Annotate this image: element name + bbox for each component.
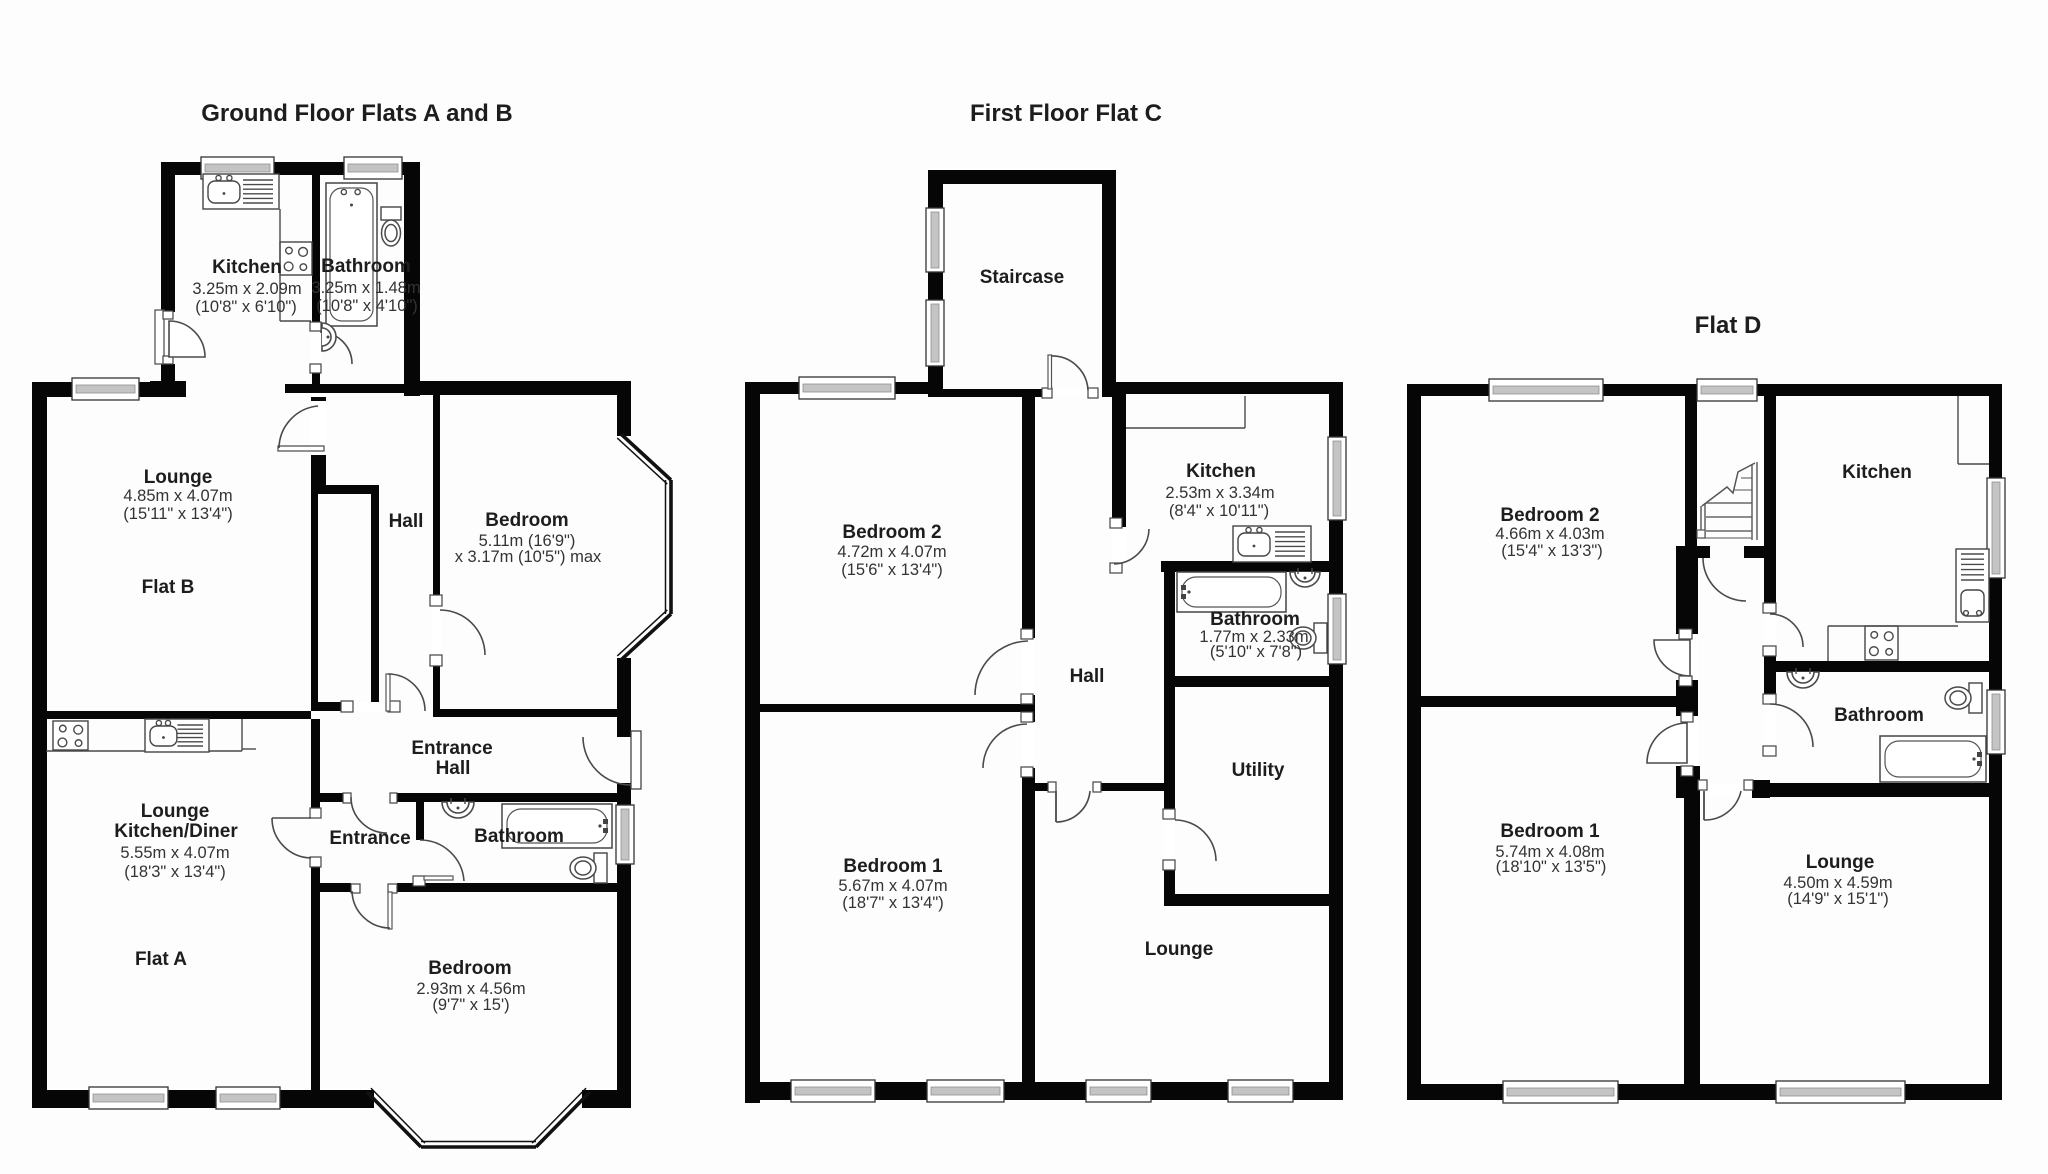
svg-text:Lounge: Lounge (1145, 939, 1214, 960)
svg-text:Bedroom 2: Bedroom 2 (842, 522, 941, 543)
svg-text:2.53m x 3.34m: 2.53m x 3.34m (1165, 484, 1274, 502)
svg-text:(18'3" x 13'4"): (18'3" x 13'4") (124, 863, 225, 881)
svg-text:First Floor Flat C: First Floor Flat C (970, 100, 1162, 127)
svg-text:(10'8" x 4'10"): (10'8" x 4'10") (316, 297, 417, 315)
svg-text:3.25m x 2.09m: 3.25m x 2.09m (192, 280, 301, 298)
svg-text:(5'10" x 7'8"): (5'10" x 7'8") (1210, 643, 1302, 661)
svg-text:Bathroom: Bathroom (1210, 609, 1300, 630)
svg-text:(8'4" x 10'11"): (8'4" x 10'11") (1169, 502, 1269, 520)
svg-text:Bedroom 1: Bedroom 1 (843, 856, 943, 877)
svg-text:4.85m x 4.07m: 4.85m x 4.07m (123, 487, 232, 505)
svg-text:(15'4" x 13'3"): (15'4" x 13'3") (1501, 542, 1602, 560)
svg-text:3.25m x 1.48m: 3.25m x 1.48m (311, 279, 420, 297)
svg-text:Kitchen: Kitchen (1842, 462, 1912, 483)
svg-text:Kitchen: Kitchen (1186, 461, 1256, 482)
svg-text:(18'7" x 13'4"): (18'7" x 13'4") (842, 894, 943, 912)
svg-text:Utility: Utility (1232, 760, 1285, 781)
svg-text:Lounge: Lounge (144, 467, 213, 488)
svg-text:Bathroom: Bathroom (474, 826, 564, 847)
svg-text:Bathroom: Bathroom (1834, 705, 1924, 726)
svg-text:(18'10" x 13'5"): (18'10" x 13'5") (1496, 858, 1607, 876)
svg-text:Kitchen/Diner: Kitchen/Diner (114, 821, 238, 842)
svg-text:Bedroom 1: Bedroom 1 (1500, 821, 1600, 842)
svg-text:Ground Floor Flats A and B: Ground Floor Flats A and B (201, 100, 513, 127)
svg-text:Bedroom: Bedroom (485, 510, 568, 531)
svg-text:Entrance: Entrance (411, 738, 492, 759)
svg-text:Hall: Hall (436, 758, 471, 779)
svg-text:Bedroom 2: Bedroom 2 (1500, 505, 1599, 526)
svg-text:5.55m x 4.07m: 5.55m x 4.07m (120, 844, 229, 862)
svg-text:5.67m x 4.07m: 5.67m x 4.07m (838, 877, 947, 895)
svg-text:4.66m x 4.03m: 4.66m x 4.03m (1495, 525, 1604, 543)
svg-text:Hall: Hall (1070, 666, 1105, 687)
svg-text:Flat A: Flat A (135, 949, 187, 970)
svg-text:Bedroom: Bedroom (428, 958, 511, 979)
svg-text:Kitchen: Kitchen (212, 257, 282, 278)
svg-text:Lounge: Lounge (1806, 852, 1875, 873)
svg-text:(10'8" x 6'10"): (10'8" x 6'10") (195, 298, 296, 316)
svg-text:Flat B: Flat B (142, 577, 195, 598)
svg-text:Bathroom: Bathroom (321, 256, 411, 277)
svg-text:(14'9" x 15'1"): (14'9" x 15'1") (1787, 890, 1888, 908)
svg-text:(9'7" x 15'): (9'7" x 15') (432, 996, 509, 1014)
svg-text:x 3.17m (10'5") max: x 3.17m (10'5") max (455, 548, 602, 566)
svg-text:Lounge: Lounge (141, 801, 210, 822)
svg-text:(15'11" x 13'4"): (15'11" x 13'4") (123, 505, 232, 523)
svg-text:4.72m x 4.07m: 4.72m x 4.07m (837, 543, 946, 561)
svg-text:Flat D: Flat D (1695, 312, 1762, 339)
svg-text:(15'6" x 13'4"): (15'6" x 13'4") (841, 561, 942, 579)
svg-text:Entrance: Entrance (329, 828, 410, 849)
svg-text:Staircase: Staircase (980, 267, 1065, 288)
svg-text:Hall: Hall (389, 511, 424, 532)
